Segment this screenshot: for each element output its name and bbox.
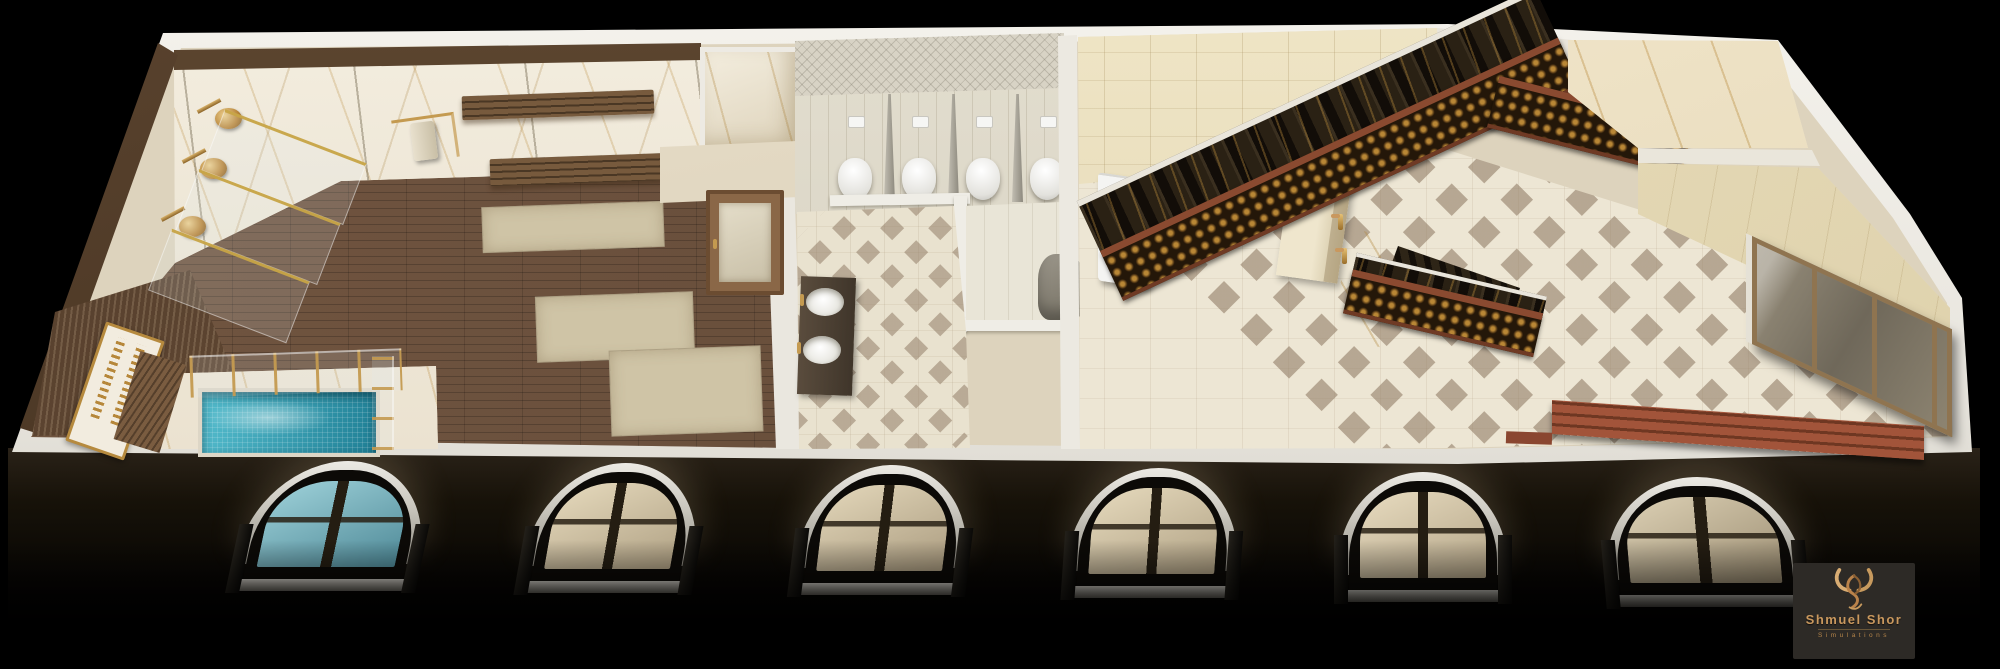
floor-rug: [609, 345, 764, 436]
gold-faucet: [1338, 214, 1343, 230]
vessel-sink: [806, 288, 844, 316]
toilet-bowl: [1030, 158, 1064, 200]
logo-title: Shmuel Shor: [1806, 612, 1903, 627]
logo-subtitle: Simulations: [1818, 629, 1890, 639]
door-glass-panel: [719, 203, 771, 282]
marble-stall: [700, 47, 803, 158]
bottom-shadow-fade: [0, 540, 2000, 669]
flush-plate: [848, 116, 865, 128]
mikveh-pool: [198, 388, 380, 457]
vessel-sink: [803, 336, 841, 364]
floor-rug: [481, 201, 664, 253]
wall-hung-toilet: [838, 150, 872, 200]
towel: [410, 121, 438, 162]
bull-horns-icon: [1831, 567, 1877, 611]
toilet-bowl: [966, 158, 1000, 200]
flush-plate: [1040, 116, 1057, 128]
wall-hung-toilet: [966, 150, 1000, 200]
studio-logo: Shmuel Shor Simulations: [1793, 563, 1915, 659]
flush-plate: [976, 116, 993, 128]
render-canvas: Shmuel Shor Simulations: [0, 0, 2000, 669]
door-handle: [713, 239, 717, 249]
gold-faucet: [800, 294, 804, 306]
flush-plate: [912, 116, 929, 128]
gold-faucet: [797, 342, 801, 354]
pool-glass-railing: [189, 348, 402, 397]
pool-glass-railing: [372, 356, 394, 450]
interior-door: [706, 190, 784, 295]
wood-bench: [1506, 431, 1552, 445]
